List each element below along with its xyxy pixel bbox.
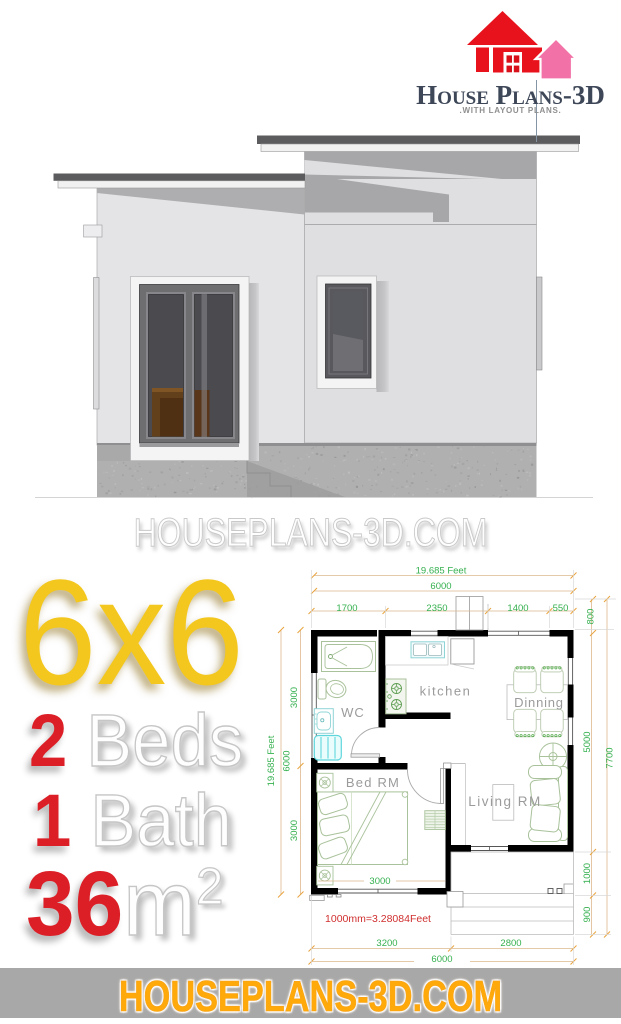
svg-text:kitchen: kitchen: [420, 684, 472, 699]
svg-text:2350: 2350: [426, 603, 447, 614]
svg-text:Living RM: Living RM: [468, 794, 542, 809]
svg-text:19.685 Feet: 19.685 Feet: [416, 566, 467, 577]
svg-text:19.685 Feet: 19.685 Feet: [266, 735, 277, 786]
svg-text:1000: 1000: [582, 863, 593, 884]
svg-text:3000: 3000: [289, 687, 300, 708]
svg-text:6000: 6000: [430, 581, 451, 592]
svg-text:1400: 1400: [507, 603, 528, 614]
svg-text:6000: 6000: [431, 954, 452, 965]
svg-text:1700: 1700: [336, 603, 357, 614]
svg-text:3200: 3200: [376, 938, 397, 949]
svg-text:550: 550: [553, 603, 569, 614]
svg-text:Bed RM: Bed RM: [346, 775, 400, 790]
svg-text:WC: WC: [341, 705, 365, 720]
svg-text:1000mm=3.28084Feet: 1000mm=3.28084Feet: [325, 913, 431, 925]
svg-text:6000: 6000: [282, 750, 293, 771]
svg-text:800: 800: [586, 609, 597, 625]
svg-text:2800: 2800: [500, 938, 521, 949]
svg-text:900: 900: [582, 907, 593, 923]
svg-text:Dinning: Dinning: [514, 695, 564, 710]
svg-text:3000: 3000: [289, 820, 300, 841]
svg-text:3000: 3000: [369, 876, 390, 887]
svg-text:5000: 5000: [582, 731, 593, 752]
svg-text:7700: 7700: [605, 747, 616, 768]
